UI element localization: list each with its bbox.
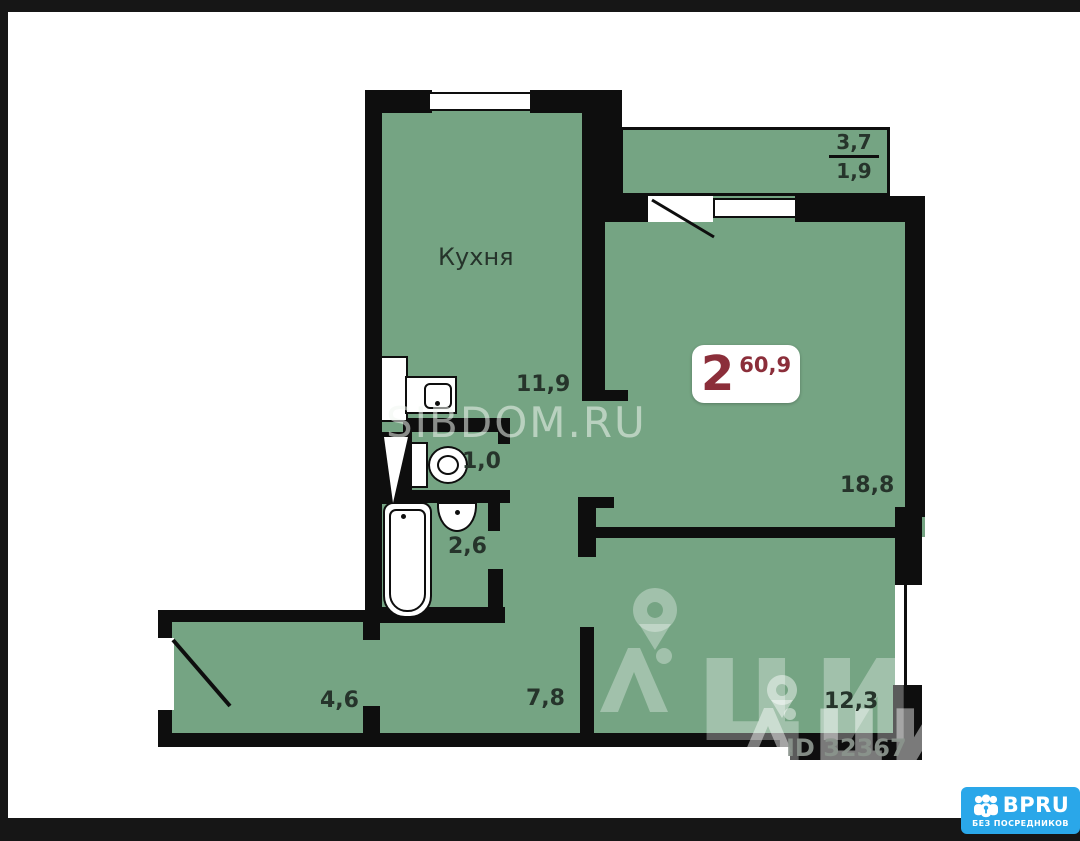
kitchen-window xyxy=(428,92,532,111)
bathtub-drain-dot xyxy=(401,514,406,519)
area-label-bath: 2,6 xyxy=(448,536,487,558)
bedroom-window xyxy=(895,585,922,685)
floorplan-image: Кухня 11,9 1,0 2,6 4,6 7,8 18,8 12,3 3,7… xyxy=(0,0,1080,841)
fraction-line xyxy=(829,155,879,158)
area-label-wc: 1,0 xyxy=(462,451,501,473)
kitchen-sink-drain-dot xyxy=(435,401,440,406)
wall-segment xyxy=(158,733,798,747)
area-label-bedroom: 12,3 xyxy=(824,691,878,713)
balcony-area-fraction: 3,7 1,9 xyxy=(826,131,882,182)
wall-segment xyxy=(498,418,510,444)
balcony-area-total: 3,7 xyxy=(826,131,882,153)
wall-segment xyxy=(158,610,373,622)
wall-segment xyxy=(363,706,380,735)
area-label-hall: 4,6 xyxy=(320,690,359,712)
area-label-living: 18,8 xyxy=(840,475,894,497)
wall-segment xyxy=(365,607,505,623)
wall-segment xyxy=(582,390,628,401)
bpru-name: BPRU xyxy=(1003,795,1070,816)
room-label-kitchen: Кухня xyxy=(438,245,514,269)
wall-segment xyxy=(403,418,510,432)
wall-segment xyxy=(488,497,500,531)
left-frame-bar xyxy=(0,0,8,841)
bpru-logo-badge: BPRU БЕЗ ПОСРЕДНИКОВ xyxy=(961,787,1080,834)
balcony-area-reduced: 1,9 xyxy=(826,160,882,182)
toilet-bowl-inner xyxy=(437,455,459,475)
wall-segment xyxy=(582,113,605,400)
wall-segment xyxy=(795,196,907,222)
area-label-corridor: 7,8 xyxy=(526,688,565,710)
wall-segment xyxy=(905,196,925,517)
area-label-kitchen: 11,9 xyxy=(516,374,570,396)
living-room-window xyxy=(713,198,797,218)
entrance-door-opening xyxy=(156,638,174,710)
bpru-tagline: БЕЗ ПОСРЕДНИКОВ xyxy=(972,820,1069,828)
washbasin-counter-line xyxy=(431,499,483,502)
apartment-badge: 2 60,9 xyxy=(692,345,800,403)
people-lock-icon xyxy=(972,794,1000,818)
toilet-tank-icon xyxy=(410,442,428,488)
wall-segment xyxy=(790,733,922,760)
wall-niche xyxy=(380,356,408,422)
wall-segment xyxy=(593,527,905,538)
top-frame-bar xyxy=(0,0,1080,12)
wall-segment xyxy=(580,627,594,735)
washbasin-drain-dot xyxy=(455,510,460,515)
wall-segment xyxy=(585,196,650,222)
wall-segment xyxy=(895,507,922,587)
balcony-door-opening xyxy=(648,196,713,222)
wall-segment xyxy=(158,708,172,735)
bathtub-inner xyxy=(389,509,426,612)
bottom-frame-bar xyxy=(0,818,1080,841)
badge-total-area: 60,9 xyxy=(739,353,791,377)
bedroom-window-glass-line xyxy=(904,585,907,685)
wall-segment xyxy=(158,610,172,640)
badge-room-count: 2 xyxy=(701,350,734,398)
wall-segment xyxy=(578,497,614,508)
floor-hall-corridor xyxy=(158,610,798,740)
